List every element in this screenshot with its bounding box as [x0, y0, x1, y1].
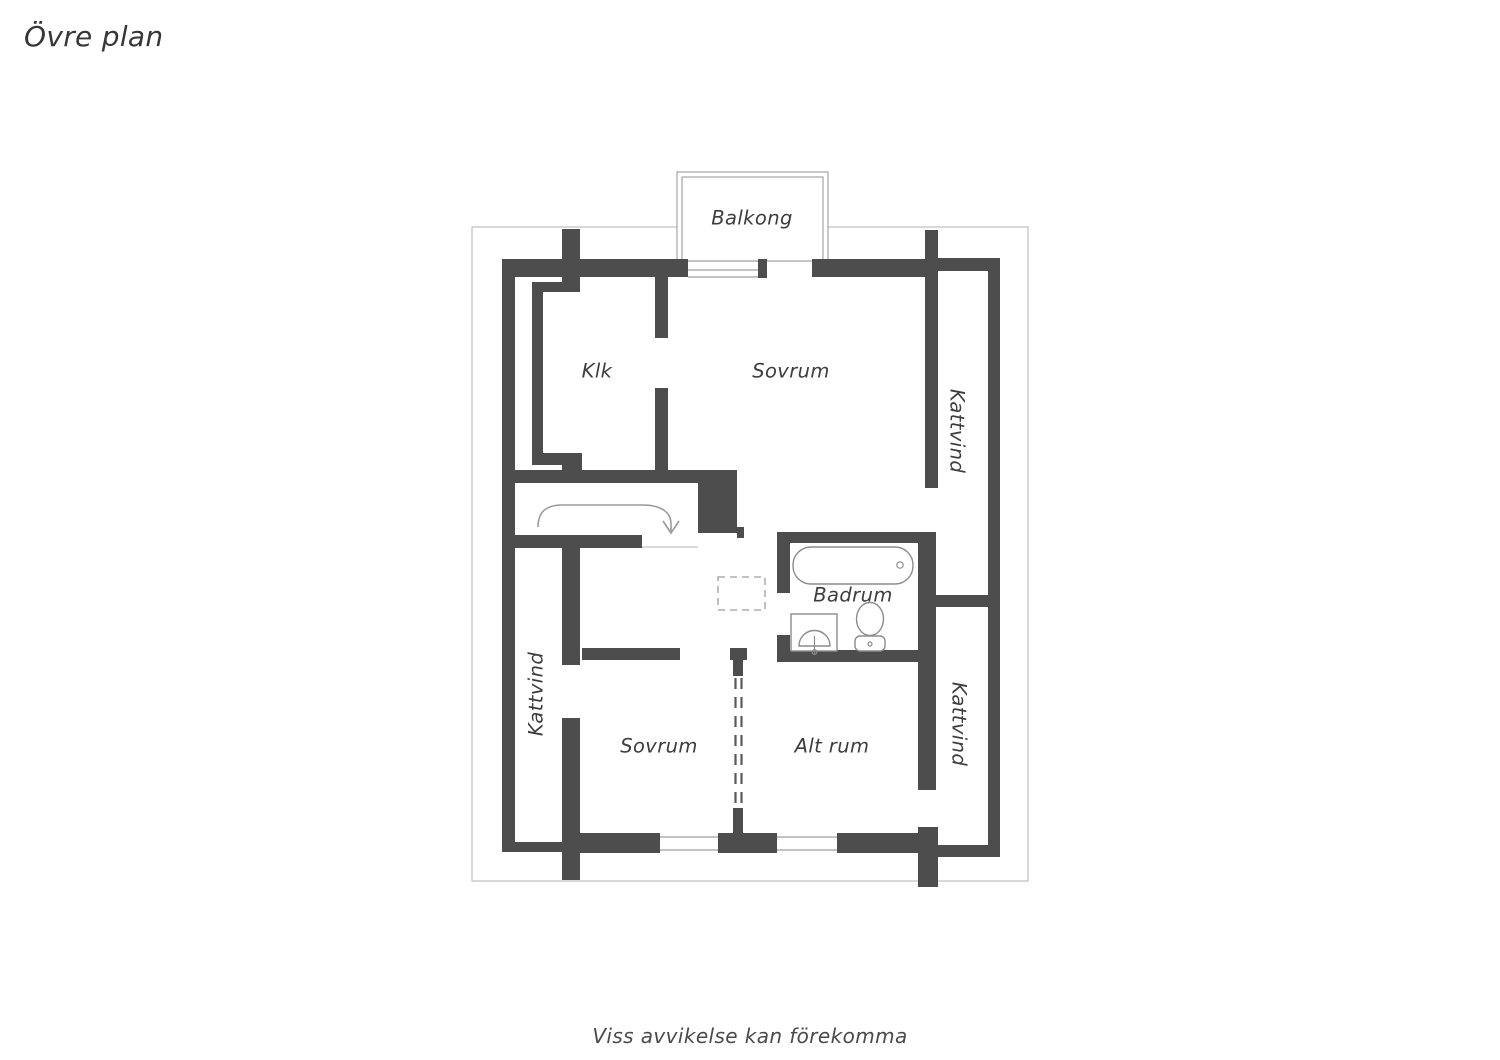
room-label-balkong: Balkong [711, 207, 793, 230]
walls [502, 229, 1000, 887]
room-label-alt-rum: Alt rum [795, 735, 870, 758]
window-symbol-bottom-right [777, 833, 837, 853]
bathtub-icon [793, 547, 913, 584]
dashed-opening [736, 678, 742, 806]
room-label-badrum: Badrum [813, 584, 892, 607]
chimney-shaft-dashed [718, 577, 765, 610]
outer-boundary [472, 227, 1028, 881]
window-symbol-top [688, 258, 758, 278]
room-label-kattvind-right-upper: Kattvind [946, 389, 969, 473]
room-label-sovrum-lower: Sovrum [620, 735, 698, 758]
window-symbol-bottom-left [660, 833, 718, 853]
toilet-icon [855, 603, 885, 652]
floorplan-drawing [0, 0, 1500, 1060]
room-label-sovrum-upper: Sovrum [752, 360, 830, 383]
room-label-klk: Klk [582, 360, 613, 383]
floorplan-page: Övre plan [0, 0, 1500, 1060]
room-label-kattvind-right-lower: Kattvind [948, 682, 971, 766]
disclaimer-text: Viss avvikelse kan förekomma [592, 1024, 907, 1048]
room-label-kattvind-left: Kattvind [525, 652, 548, 736]
sink-icon [791, 614, 837, 654]
